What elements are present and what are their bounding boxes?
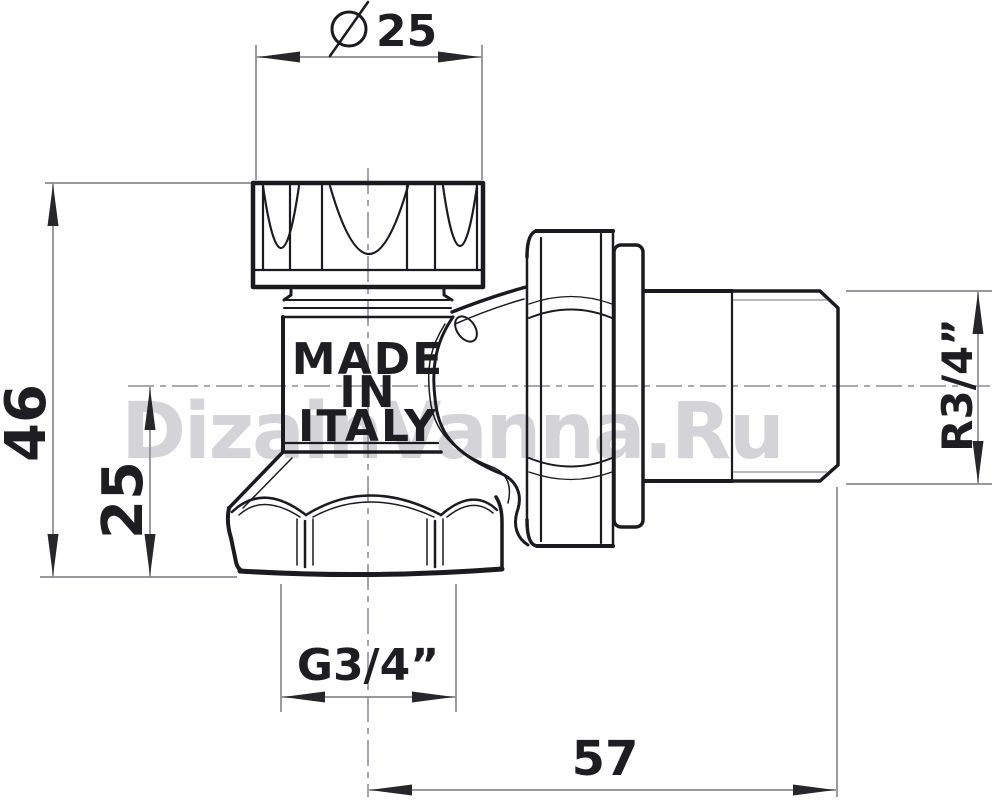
arrowhead-right: [438, 52, 480, 63]
dimension-value: 57: [572, 731, 639, 787]
centerlines: [128, 168, 992, 797]
dimension-value: R3/4”: [933, 318, 982, 452]
nut-left-edge: [228, 508, 248, 572]
nut-bottom-edge: [240, 569, 502, 575]
watermark-text: DizainVanna.Ru: [121, 387, 782, 477]
nut-right-edge: [496, 497, 502, 569]
dimension-value: G3/4”: [297, 640, 439, 691]
dimension-value: 46: [0, 384, 59, 462]
nut-top-left-chamfer: [527, 231, 536, 257]
valve-technical-drawing: DizainVanna.Ru MADE IN ITALY: [0, 0, 1000, 800]
dimension-value: 25: [91, 461, 156, 539]
dimension-thread-g34: G3/4”: [281, 584, 456, 712]
arrowhead-left: [370, 785, 412, 796]
marking-italy: ITALY: [298, 401, 438, 452]
arrowhead-down: [145, 534, 156, 576]
arrowhead-left: [258, 52, 300, 63]
dimension-thread-r34: R3/4”: [846, 291, 992, 484]
dimension-length-57: 57: [369, 487, 837, 797]
dimension-value: 25: [376, 6, 437, 57]
lobe-arc-right: [441, 500, 497, 515]
casting-chamfer-facet: [451, 312, 482, 345]
casting-top-curve: [452, 287, 526, 312]
valve-body: MADE IN ITALY: [283, 317, 444, 452]
arrowhead-up: [48, 184, 59, 226]
casting-top-curve-inner: [455, 299, 524, 324]
diameter-symbol-slash: [330, 2, 368, 56]
cap-knurl-groove: [330, 186, 408, 254]
arrowhead-down: [48, 534, 59, 576]
arrowhead-right: [793, 785, 835, 796]
dimension-cap-diameter: 25: [256, 2, 482, 180]
diameter-symbol-icon: [330, 2, 368, 56]
technical-drawing-page: DizainVanna.Ru MADE IN ITALY: [0, 0, 1000, 800]
cap-knurl-groove: [263, 186, 299, 248]
nut-bottom-left-chamfer: [527, 520, 537, 546]
cap-knurl-groove: [443, 186, 477, 246]
lobe-arc-right-inner: [447, 505, 493, 517]
arrowhead-left: [283, 692, 325, 703]
arrowhead-right: [412, 692, 454, 703]
